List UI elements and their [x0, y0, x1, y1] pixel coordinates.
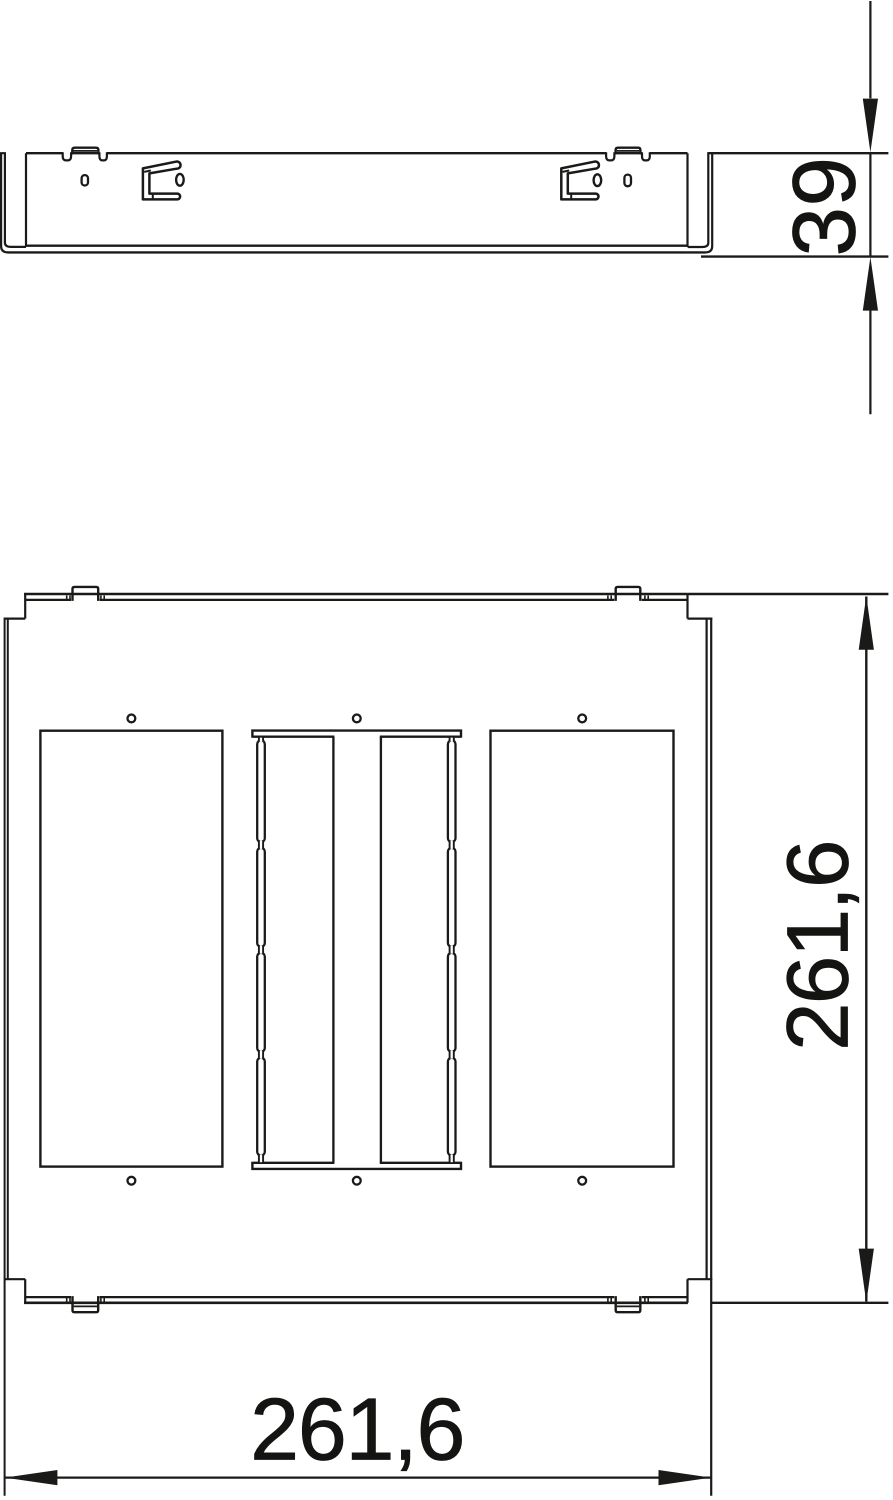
svg-text:39: 39 [774, 157, 874, 257]
svg-text:261,6: 261,6 [770, 841, 867, 1051]
svg-text:261,6: 261,6 [250, 1380, 464, 1479]
